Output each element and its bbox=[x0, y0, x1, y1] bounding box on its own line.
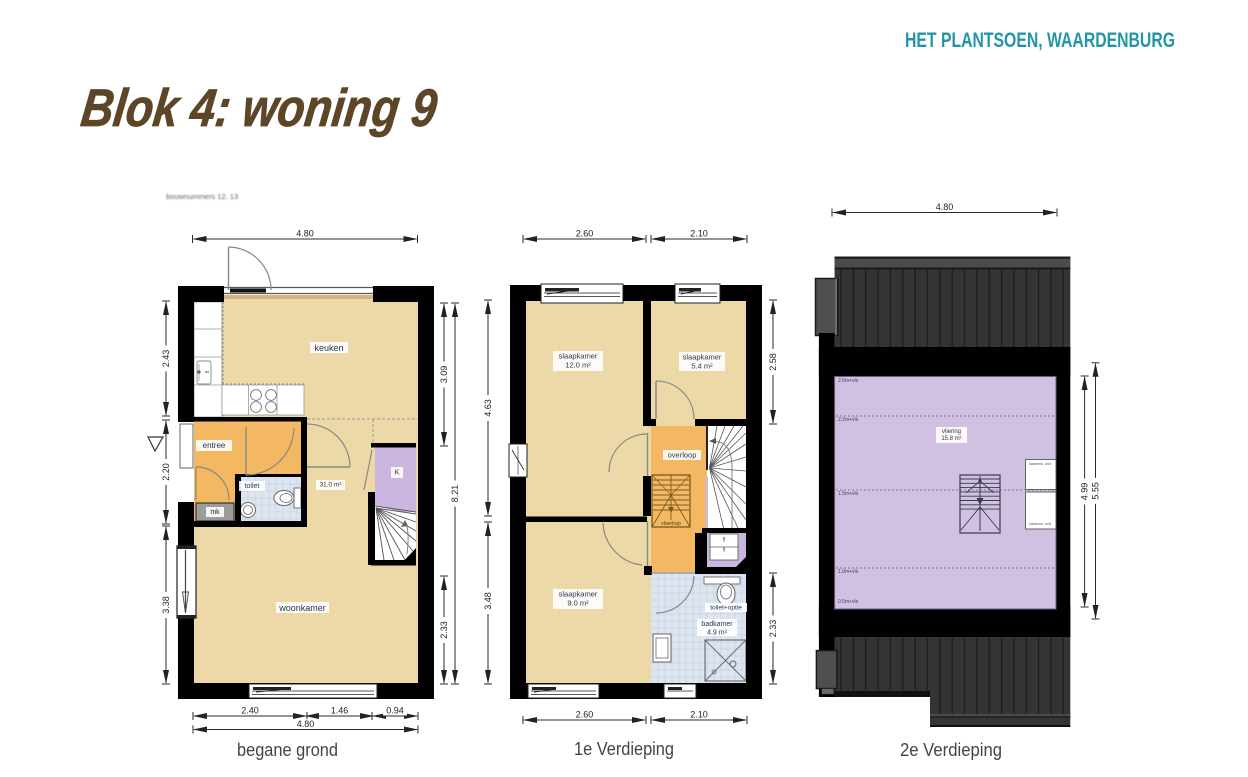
svg-text:3.09: 3.09 bbox=[439, 366, 449, 384]
svg-text:mk: mk bbox=[210, 509, 220, 516]
svg-text:4.99: 4.99 bbox=[1080, 483, 1090, 501]
svg-text:12.0 m²: 12.0 m² bbox=[565, 361, 591, 370]
svg-text:2.60: 2.60 bbox=[576, 710, 594, 720]
svg-text:8.21: 8.21 bbox=[450, 485, 460, 503]
svg-text:HET PLANTSOEN, WAARDENBURG: HET PLANTSOEN, WAARDENBURG bbox=[905, 29, 1175, 52]
svg-text:4.80: 4.80 bbox=[936, 202, 954, 212]
svg-text:2.10: 2.10 bbox=[690, 229, 708, 239]
svg-text:4.80: 4.80 bbox=[297, 719, 315, 729]
svg-text:2.6m+vlo: 2.6m+vlo bbox=[838, 378, 859, 384]
svg-text:kastenw. unit: kastenw. unit bbox=[1029, 462, 1052, 466]
svg-text:5.55: 5.55 bbox=[1091, 482, 1101, 500]
svg-text:1.5m+vlo: 1.5m+vlo bbox=[838, 491, 859, 497]
svg-text:0.94: 0.94 bbox=[386, 706, 404, 716]
svg-text:woonkamer: woonkamer bbox=[278, 603, 326, 613]
svg-text:bouwnummers 12, 13: bouwnummers 12, 13 bbox=[166, 192, 238, 201]
svg-text:4.63: 4.63 bbox=[483, 399, 493, 417]
svg-text:5.4 m²: 5.4 m² bbox=[691, 362, 713, 371]
svg-text:0.5m+vlo: 0.5m+vlo bbox=[838, 599, 859, 605]
svg-text:2.33: 2.33 bbox=[768, 620, 778, 638]
svg-text:toilet+optie: toilet+optie bbox=[710, 605, 742, 612]
svg-text:3.48: 3.48 bbox=[483, 592, 493, 610]
svg-text:Blok 4: woning 9: Blok 4: woning 9 bbox=[78, 79, 441, 138]
svg-text:3.38: 3.38 bbox=[161, 596, 171, 614]
svg-text:§: § bbox=[723, 537, 726, 543]
svg-text:2.58: 2.58 bbox=[768, 353, 778, 371]
svg-text:4.9 m²: 4.9 m² bbox=[707, 630, 728, 637]
svg-text:§: § bbox=[723, 547, 726, 553]
svg-text:2.33: 2.33 bbox=[439, 621, 449, 639]
svg-text:begane grond: begane grond bbox=[237, 740, 338, 760]
svg-text:1.0m+vlo: 1.0m+vlo bbox=[838, 569, 859, 575]
svg-text:15.8 m²: 15.8 m² bbox=[941, 436, 961, 442]
svg-text:kastenw. unit: kastenw. unit bbox=[1029, 522, 1052, 526]
svg-text:1e Verdieping: 1e Verdieping bbox=[574, 739, 674, 759]
svg-text:2.20: 2.20 bbox=[161, 463, 171, 481]
svg-text:K: K bbox=[394, 468, 399, 477]
svg-text:31.0 m²: 31.0 m² bbox=[319, 482, 342, 489]
svg-text:keuken: keuken bbox=[314, 343, 343, 353]
svg-text:toilet: toilet bbox=[245, 483, 260, 490]
svg-text:slaapkamer: slaapkamer bbox=[559, 590, 598, 599]
svg-text:2.40: 2.40 bbox=[241, 706, 259, 716]
svg-text:2.43: 2.43 bbox=[161, 350, 171, 368]
svg-text:entree: entree bbox=[203, 441, 226, 450]
svg-text:vloertrap: vloertrap bbox=[661, 521, 681, 527]
svg-text:overloop: overloop bbox=[668, 451, 697, 460]
svg-text:vliering: vliering bbox=[942, 429, 961, 435]
svg-text:4.80: 4.80 bbox=[296, 229, 314, 239]
svg-text:slaapkamer: slaapkamer bbox=[559, 352, 598, 361]
svg-text:badkamer: badkamer bbox=[701, 621, 733, 628]
svg-text:1.46: 1.46 bbox=[331, 706, 349, 716]
svg-text:2e Verdieping: 2e Verdieping bbox=[900, 740, 1002, 760]
svg-text:2.10: 2.10 bbox=[690, 710, 708, 720]
svg-text:2.60: 2.60 bbox=[576, 229, 594, 239]
svg-text:9.0 m²: 9.0 m² bbox=[567, 599, 589, 608]
svg-text:slaapkamer: slaapkamer bbox=[683, 353, 722, 362]
svg-text:2.2m+vlo: 2.2m+vlo bbox=[838, 417, 859, 423]
